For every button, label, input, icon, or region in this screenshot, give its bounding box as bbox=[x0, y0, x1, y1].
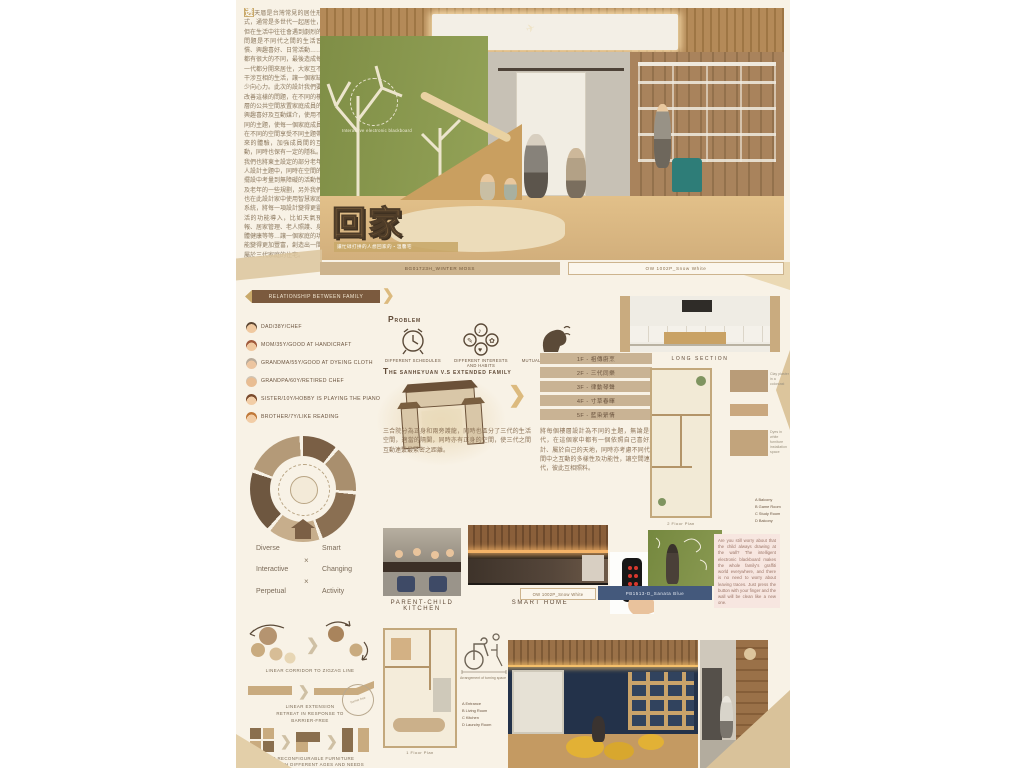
mom-avatar-icon bbox=[246, 340, 257, 351]
hero-render: Interactive electronic blackboard ✈ 回家 讓… bbox=[320, 8, 784, 260]
family-member-label: BROTHER/7Y/LIKE READING bbox=[261, 414, 339, 420]
problem-label: Different schedules bbox=[382, 358, 444, 363]
family-member-label: MOM/35Y/GOOD AT HANDICRAFT bbox=[261, 342, 352, 348]
kitchen-caption: Parent-child Kitchen bbox=[383, 600, 461, 612]
floor-theme-bar: 4F - 寸草春暉 bbox=[540, 395, 652, 406]
chevron-right-icon: ❯ bbox=[508, 382, 526, 408]
concept-word: Interactive bbox=[256, 566, 312, 573]
plan-sofa bbox=[393, 718, 445, 732]
concept-word: Smart bbox=[322, 545, 378, 552]
navy-chair bbox=[429, 576, 447, 592]
intro-dropcap: 透 bbox=[244, 8, 254, 17]
family-member-label: GRANDPA/60Y/RETIRED CHEF bbox=[261, 378, 344, 384]
child-drawing-photo bbox=[648, 530, 722, 586]
figure-child-drawing bbox=[666, 544, 679, 584]
smart-home-ceiling bbox=[468, 525, 608, 551]
chalk-scribbles bbox=[648, 530, 722, 586]
material-note-1: Clay plaster in a colorcast bbox=[770, 372, 790, 387]
donut-center-circle bbox=[290, 476, 318, 504]
alarm-clock-icon bbox=[396, 324, 430, 356]
material-swatch-2 bbox=[730, 404, 768, 416]
sister-avatar-icon bbox=[246, 394, 257, 405]
parent-child-kitchen-photo bbox=[383, 528, 461, 596]
legend-item: B Game Room bbox=[755, 503, 790, 510]
smart-home-caption: Smart Home bbox=[494, 600, 586, 606]
beanbag bbox=[638, 734, 664, 750]
figure-head bbox=[413, 548, 421, 556]
dad-avatar-icon bbox=[246, 322, 257, 333]
material-swatch-3 bbox=[730, 430, 768, 456]
concept-word: Perpetual bbox=[256, 588, 312, 595]
led-strip bbox=[468, 550, 608, 553]
family-member-label: SISTER/10Y/HOBBY IS PLAYING THE PIANO bbox=[261, 396, 380, 402]
floor-plan-1-caption: 1 Floor Plan bbox=[383, 750, 457, 755]
chevron-right-icon: ❯ bbox=[382, 286, 395, 304]
smart-home-floor bbox=[468, 583, 608, 585]
material-swatch-1 bbox=[730, 370, 768, 392]
long-section-render bbox=[620, 296, 780, 352]
floor-theme-bar: 2F - 三代同樂 bbox=[540, 367, 652, 378]
smart-home-photo bbox=[468, 525, 608, 585]
svg-text:❯: ❯ bbox=[298, 683, 310, 700]
sanheyuan-paragraph-right: 將每個樓層設計為不同的主題，無論是哪一代，在這個家中都有一個依照自己喜好所設計、… bbox=[540, 428, 662, 474]
floor-theme-bar: 5F - 藍染縈情 bbox=[540, 409, 652, 420]
playroom-light-strip bbox=[508, 665, 698, 667]
beanbag bbox=[604, 742, 634, 760]
figure-child-playroom bbox=[592, 716, 605, 742]
strategy-caption: Barrier-free bbox=[244, 718, 376, 723]
svg-text:✿: ✿ bbox=[489, 338, 495, 345]
design-poster: 透天厝是台灣常見的居住形式，通常是多世代一起居住，但在生活中往往會遇到劇烈的問題… bbox=[236, 0, 790, 768]
svg-text:✎: ✎ bbox=[467, 338, 473, 345]
family-member-row: GRANDMA/55Y/GOOD AT DYEING CLOTH bbox=[246, 354, 396, 372]
concept-word: Activity bbox=[322, 588, 378, 595]
range-hood bbox=[682, 300, 712, 312]
wheelchair-caption: Arrangement of turning space bbox=[452, 676, 514, 680]
poster-subtitle: 讓忙碌打拼的人想回家的・溫馨宅 bbox=[334, 242, 458, 252]
donut-hole bbox=[270, 456, 336, 522]
times-symbol: × bbox=[304, 577, 309, 586]
floor-plan-2-caption: 2 Floor Plan bbox=[650, 521, 712, 526]
plan-stair bbox=[433, 678, 451, 712]
sanheyuan-paragraph-left: 三合院分為正身和兩旁護龍，同時也區分了三代的生活空間，適當的隔閡，同時亦有正身的… bbox=[383, 428, 531, 456]
entry-doorway bbox=[702, 668, 722, 740]
strategy-caption: Retreat in response to bbox=[244, 711, 376, 716]
figure-head bbox=[431, 551, 439, 559]
zigzag-diagram: ❯ bbox=[244, 620, 376, 666]
section-wall-right bbox=[770, 296, 780, 352]
furniture-diagram: ❯ ❯ bbox=[244, 726, 376, 754]
blackboard-label: Interactive electronic blackboard bbox=[342, 128, 438, 133]
remote-button bbox=[628, 574, 632, 578]
legend-item: D Balcony bbox=[755, 517, 790, 524]
plant-marker bbox=[696, 376, 706, 386]
floor-theme-bar: 3F - 律動琴聲 bbox=[540, 381, 652, 392]
times-symbol: × bbox=[304, 556, 309, 565]
legend-item: A Balcony bbox=[755, 496, 790, 503]
remote-button bbox=[634, 566, 638, 570]
color-swatch-sanata-blue: PB1513-D_Sanata Blue bbox=[598, 586, 712, 600]
remote-button bbox=[634, 574, 638, 578]
home-icon bbox=[290, 518, 316, 540]
problem-heading: Problem bbox=[388, 314, 421, 324]
section-floor-line bbox=[630, 344, 770, 346]
plant-marker bbox=[658, 498, 666, 506]
family-member-row: GRANDPA/60Y/RETIRED CHEF bbox=[246, 372, 396, 390]
figure-mom bbox=[566, 148, 586, 198]
figure-dad bbox=[524, 134, 548, 198]
svg-text:♪: ♪ bbox=[478, 328, 482, 335]
section-wall-left bbox=[620, 296, 630, 352]
grandpa-avatar-icon bbox=[246, 376, 257, 387]
playroom-shelving bbox=[628, 672, 694, 730]
material-note-2: Dyes in white furniture installation spa… bbox=[770, 430, 790, 455]
floor-plan-2 bbox=[650, 368, 712, 518]
family-heading: Relationship between family bbox=[252, 290, 380, 303]
tan-edge-wedge bbox=[776, 350, 790, 430]
interference-icon bbox=[534, 322, 572, 356]
family-member-row: DAD/38Y/CHEF bbox=[246, 318, 396, 336]
plan-wall bbox=[652, 466, 692, 468]
kitchen-floor bbox=[383, 572, 461, 596]
wheelchair-diagram bbox=[458, 630, 510, 674]
wood-island bbox=[664, 332, 726, 344]
blackboard-dashed-circle bbox=[350, 78, 398, 126]
screenshot-canvas: 透天厝是台灣常見的居住形式，通常是多世代一起居住，但在生活中往往會遇到劇烈的問題… bbox=[0, 0, 1024, 768]
legend-item: C Study Room bbox=[755, 510, 790, 517]
intro-text: 天厝是台灣常見的居住形式，通常是多世代一起居住，但在生活中往往會遇到劇烈的問題是… bbox=[244, 11, 322, 259]
concept-word: Changing bbox=[322, 566, 378, 573]
plan-wall bbox=[385, 666, 429, 668]
family-member-label: DAD/38Y/CHEF bbox=[261, 324, 302, 330]
playroom-ceiling bbox=[508, 640, 698, 666]
figure-head bbox=[446, 549, 454, 557]
svg-text:♥: ♥ bbox=[478, 347, 482, 354]
color-swatch-snow-white: OW 1002P_Snow White bbox=[568, 262, 784, 275]
color-swatch-snow-white-2: OW 1002P_Snow White bbox=[520, 588, 596, 600]
family-member-label: GRANDMA/55Y/GOOD AT DYEING CLOTH bbox=[261, 360, 373, 366]
color-swatch-winter-moss: BG01723H_WINTER MOSS bbox=[320, 262, 560, 275]
long-section-caption: Long Section bbox=[620, 356, 780, 362]
ribbon-fold bbox=[245, 290, 252, 303]
plan2-legend: A Balcony B Game Room C Study Room D Bal… bbox=[755, 496, 790, 524]
svg-text:❯: ❯ bbox=[280, 733, 292, 750]
playroom-window bbox=[512, 670, 564, 734]
strategy-caption: Linear extension bbox=[244, 704, 376, 709]
family-member-row: MOM/35Y/GOOD AT HANDICRAFT bbox=[246, 336, 396, 354]
brother-avatar-icon bbox=[246, 412, 257, 423]
teal-chair bbox=[672, 158, 702, 192]
family-member-row: BROTHER/7Y/LIKE READING bbox=[246, 408, 396, 426]
figure-head bbox=[395, 550, 403, 558]
entry-logo-dot bbox=[744, 648, 756, 660]
navy-chair bbox=[397, 576, 415, 592]
svg-text:❯: ❯ bbox=[306, 637, 319, 655]
concept-word: Diverse bbox=[256, 545, 312, 552]
kitchen-table bbox=[383, 562, 461, 572]
smart-home-window bbox=[582, 555, 604, 581]
grandma-avatar-icon bbox=[246, 358, 257, 369]
figure-child-1 bbox=[480, 174, 495, 200]
figure-walking bbox=[654, 104, 671, 168]
interests-icon: ♪✎ ✿♥ bbox=[462, 322, 500, 356]
plan-wall bbox=[680, 414, 682, 468]
intro-paragraph: 透天厝是台灣常見的居住形式，通常是多世代一起居住，但在生活中往往會遇到劇烈的問題… bbox=[244, 8, 322, 260]
plan-wood-area bbox=[391, 638, 411, 660]
floor-plan-1 bbox=[383, 628, 457, 748]
remote-button bbox=[628, 566, 632, 570]
family-member-row: SISTER/10Y/HOBBY IS PLAYING THE PIANO bbox=[246, 390, 396, 408]
figure-child-2 bbox=[504, 178, 517, 200]
strategy-caption: Linear corridor to zigzag line bbox=[244, 668, 376, 673]
playroom-render bbox=[508, 640, 698, 768]
smart-blackboard-note: Are you still worry about that the child… bbox=[714, 534, 780, 608]
poster-title: 回家 bbox=[332, 196, 404, 245]
figure-entry bbox=[720, 696, 733, 738]
plan-wall bbox=[429, 630, 431, 690]
svg-text:❯: ❯ bbox=[326, 733, 338, 750]
barn-door-rail bbox=[498, 68, 624, 71]
